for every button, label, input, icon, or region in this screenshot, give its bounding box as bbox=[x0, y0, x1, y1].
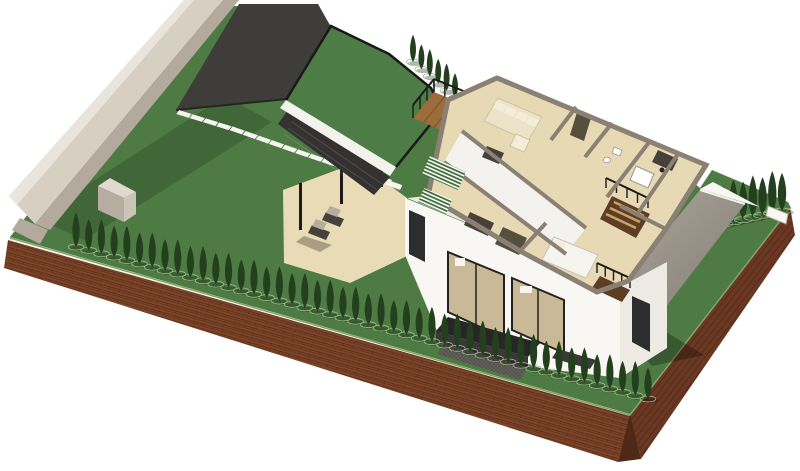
render-canvas bbox=[0, 0, 800, 471]
toilet bbox=[604, 157, 611, 163]
side-door-dark bbox=[409, 210, 425, 262]
interior-glimpse bbox=[520, 286, 532, 293]
roof-cypress bbox=[418, 45, 424, 70]
interior-glimpse bbox=[455, 258, 465, 266]
pergola-post bbox=[299, 183, 302, 230]
roof-cypress bbox=[410, 35, 416, 62]
site-render-svg bbox=[0, 0, 800, 471]
